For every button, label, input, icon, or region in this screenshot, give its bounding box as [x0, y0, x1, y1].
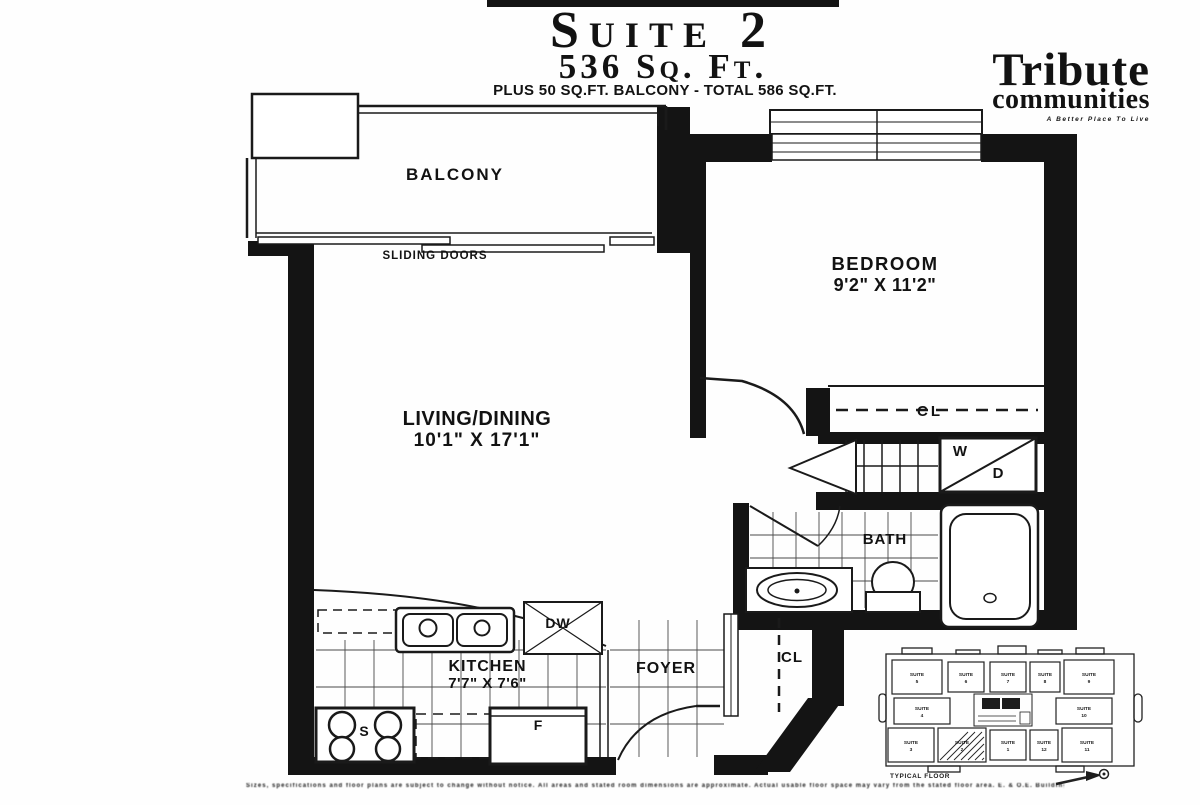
washer-label: W [950, 444, 970, 461]
bath-label: BATH [845, 532, 925, 549]
bedroom-door-arc [700, 378, 804, 434]
balcony-planter [252, 94, 358, 158]
living-dining-label: LIVING/DINING 10'1" X 17'1" [377, 408, 577, 452]
keyplan-suite-label: SUITE [910, 672, 925, 678]
keyplan-suite-label: 4 [921, 713, 924, 719]
keyplan-suite-label: 8 [1044, 679, 1047, 685]
kitchen-double-sink [396, 608, 514, 652]
living-dining-dimensions: 10'1" X 17'1" [377, 430, 577, 451]
counter-dashed-left [318, 610, 396, 633]
keyplan-suite-label: SUITE [904, 740, 919, 746]
dishwasher-label: DW [538, 616, 578, 631]
bathtub [941, 505, 1038, 627]
keyplan-suite-label: 11 [1084, 747, 1089, 753]
bedroom-closet-label: CL [905, 404, 955, 421]
keyplan-suites: SUITE5SUITE6SUITE7SUITE8SUITE9SUITE4SUIT… [888, 660, 1114, 762]
keyplan-suite-label: 7 [1007, 679, 1010, 685]
keyplan-suite-label: 5 [916, 679, 919, 685]
fine-print-disclaimer: Sizes, specifications and floor plans ar… [246, 783, 1064, 789]
keyplan-suite-label: 12 [1041, 747, 1047, 753]
keyplan-suite-label: 9 [1088, 679, 1091, 685]
keyplan-suite-label: SUITE [1001, 672, 1016, 678]
linen-shelves [846, 440, 938, 492]
keyplan-suite-label: SUITE [1077, 706, 1092, 712]
living-dining-name: LIVING/DINING [377, 408, 577, 430]
bedroom-dimensions: 9'2" X 11'2" [795, 275, 975, 295]
keyplan-suite-label: 1 [1007, 747, 1010, 753]
counter-dashed-mid [416, 714, 490, 758]
sliding-doors-label: SLIDING DOORS [350, 250, 520, 263]
keyplan-suite-label: SUITE [1038, 672, 1053, 678]
dryer-label: D [988, 466, 1008, 483]
keyplan-suite-label: 2 [961, 747, 964, 753]
stove-label: S [354, 724, 374, 739]
keyplan-suite-label: 10 [1081, 713, 1087, 719]
keyplan-caption: TYPICAL FLOOR [890, 773, 950, 780]
foyer-label: FOYER [616, 660, 716, 678]
kitchen-label: KITCHEN 7'7" X 7'6" [400, 658, 575, 693]
entry-door-arc [618, 706, 720, 760]
kitchen-dimensions: 7'7" X 7'6" [400, 676, 575, 693]
keyplan-suite-label: SUITE [1001, 740, 1016, 746]
keyplan-suite-label: SUITE [959, 672, 974, 678]
bathroom-vanity-sink [746, 568, 852, 612]
bedroom-label: BEDROOM 9'2" X 11'2" [795, 254, 975, 295]
building-keyplan: SUITE5SUITE6SUITE7SUITE8SUITE9SUITE4SUIT… [879, 646, 1142, 784]
floorplan-svg: SUITE5SUITE6SUITE7SUITE8SUITE9SUITE4SUIT… [0, 0, 1200, 805]
toilet-icon [866, 562, 920, 612]
balcony-label: BALCONY [380, 166, 530, 185]
keyplan-suite-label: SUITE [1037, 740, 1052, 746]
partition-kitchen-foyer [600, 650, 608, 757]
bifold-door-icon [790, 440, 856, 494]
bath-door-arc [750, 506, 840, 546]
keyplan-suite-label: SUITE [1080, 740, 1095, 746]
keyplan-core [974, 694, 1032, 726]
floorplan-page: Suite 2 536 Sq. Ft. PLUS 50 SQ.FT. BALCO… [0, 0, 1200, 805]
foyer-closet-label: CL [772, 650, 812, 667]
keyplan-suite-label: SUITE [915, 706, 930, 712]
bedroom-window [770, 110, 982, 160]
bedroom-name: BEDROOM [795, 254, 975, 275]
keyplan-suite-label: SUITE [1082, 672, 1097, 678]
kitchen-name: KITCHEN [400, 658, 575, 676]
fridge-label: F [528, 718, 548, 733]
keyplan-suite-label: 6 [965, 679, 968, 685]
keyplan-suite-label: 3 [910, 747, 913, 753]
keyplan-suite-label: SUITE [955, 740, 970, 746]
